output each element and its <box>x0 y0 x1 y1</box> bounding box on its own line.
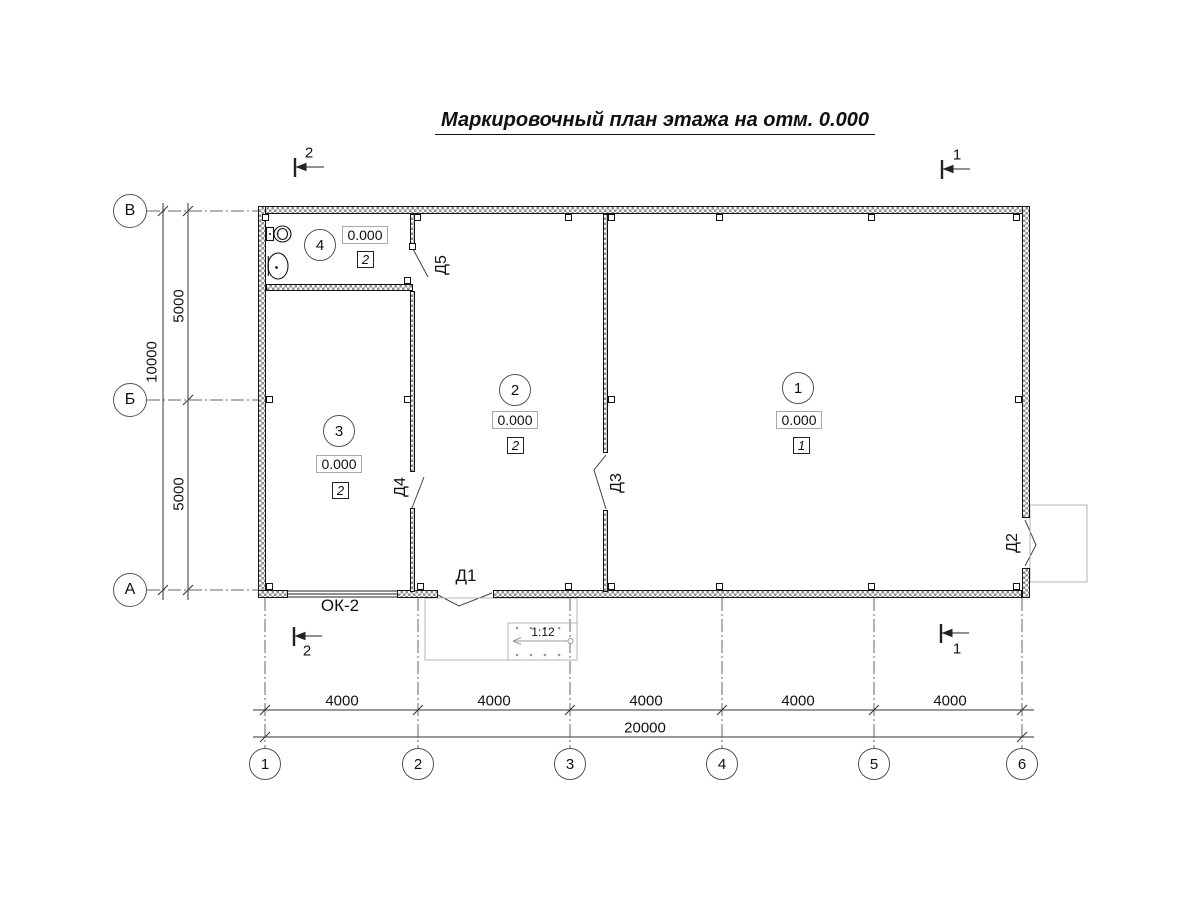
room-3-elevation-value: 0.000 <box>321 456 356 472</box>
column-tick <box>1013 583 1020 590</box>
column-tick <box>1013 214 1020 221</box>
axis-6-label: 6 <box>1018 756 1026 773</box>
room-4-elevation-value: 0.000 <box>347 227 382 243</box>
axis-bubble-a: А <box>113 573 147 607</box>
room-2-elevation: 0.000 <box>492 411 538 429</box>
axis-b-label: Б <box>125 391 136 409</box>
axis-bubble-5: 5 <box>858 748 890 780</box>
section-2-top-label: 2 <box>305 145 313 162</box>
column-tick <box>414 214 421 221</box>
room-4-finish-mark: 2 <box>357 251 374 268</box>
partition-room2-room1-upper <box>603 214 608 453</box>
column-tick <box>404 396 411 403</box>
wall-east-lower <box>1022 568 1030 598</box>
axis-3-label: 3 <box>566 756 574 773</box>
axis-bubble-2: 2 <box>402 748 434 780</box>
column-tick <box>565 583 572 590</box>
axis-bubble-1: 1 <box>249 748 281 780</box>
wall-bottom-pier-left <box>258 590 288 598</box>
room-1-bubble: 1 <box>782 372 814 404</box>
dim-4000-2: 4000 <box>477 693 510 710</box>
section-1-top-label: 1 <box>953 147 961 164</box>
door-label-d5: Д5 <box>433 255 451 275</box>
column-tick <box>1015 396 1022 403</box>
room-2-number: 2 <box>511 382 519 399</box>
window-label-ok2: ОК-2 <box>321 596 359 616</box>
partition-room4-bottom <box>266 284 413 291</box>
dim-4000-5: 4000 <box>933 693 966 710</box>
column-tick <box>266 583 273 590</box>
column-tick <box>608 396 615 403</box>
column-tick <box>409 243 416 250</box>
section-2-bottom-label: 2 <box>303 643 311 660</box>
room-1-elevation-value: 0.000 <box>781 412 816 428</box>
toilet-icon <box>267 226 292 242</box>
dim-5000-bottom: 5000 <box>171 477 188 510</box>
column-tick <box>608 583 615 590</box>
dim-10000-total: 10000 <box>144 341 161 383</box>
room-1-elevation: 0.000 <box>776 411 822 429</box>
room-2-finish-mark: 2 <box>507 437 524 454</box>
axis-4-label: 4 <box>718 756 726 773</box>
dim-4000-4: 4000 <box>781 693 814 710</box>
axis-1-label: 1 <box>261 756 269 773</box>
partition-room3-upper <box>410 291 415 472</box>
column-tick <box>608 214 615 221</box>
column-tick <box>716 583 723 590</box>
room-3-finish-value: 2 <box>337 483 344 498</box>
dim-5000-top: 5000 <box>171 289 188 322</box>
axis-bubble-3: 3 <box>554 748 586 780</box>
door-label-d2: Д2 <box>1004 533 1022 553</box>
column-tick <box>262 214 269 221</box>
room-1-number: 1 <box>794 380 802 397</box>
wall-top-exterior <box>258 206 1030 214</box>
axis-bubble-6: 6 <box>1006 748 1038 780</box>
room-4-bubble: 4 <box>304 229 336 261</box>
axis-grid-lines <box>147 211 1022 748</box>
room-2-bubble: 2 <box>499 374 531 406</box>
column-tick <box>716 214 723 221</box>
wall-bottom-exterior <box>493 590 1022 598</box>
axis-2-label: 2 <box>414 756 422 773</box>
dim-4000-1: 4000 <box>325 693 358 710</box>
room-1-finish-mark: 1 <box>793 437 810 454</box>
axis-a-label: А <box>125 581 136 599</box>
room-4-elevation: 0.000 <box>342 226 388 244</box>
column-tick <box>868 583 875 590</box>
room-1-finish-value: 1 <box>798 438 805 453</box>
axis-bubble-4: 4 <box>706 748 738 780</box>
room-4-number: 4 <box>316 237 324 254</box>
wall-east-upper <box>1022 206 1030 518</box>
room-3-number: 3 <box>335 423 343 440</box>
column-tick <box>417 583 424 590</box>
partition-room2-room1-lower <box>603 510 608 592</box>
partition-room3-lower <box>410 508 415 592</box>
door-label-d4: Д4 <box>392 477 410 497</box>
wall-bottom-pier-mid <box>397 590 438 598</box>
column-tick <box>404 277 411 284</box>
section-1-bottom-label: 1 <box>953 641 961 658</box>
door-label-d3: Д3 <box>608 473 626 493</box>
floor-plan-sheet: Маркировочный план этажа на отм. 0.000 1… <box>0 0 1200 900</box>
ramp-slope-label: 1:12 <box>531 625 554 639</box>
drawing-title: Маркировочный план этажа на отм. 0.000 <box>435 109 875 135</box>
room-2-finish-value: 2 <box>512 438 519 453</box>
axis-bubble-v: В <box>113 194 147 228</box>
column-tick <box>266 396 273 403</box>
axis-bubble-b: Б <box>113 383 147 417</box>
room-3-bubble: 3 <box>323 415 355 447</box>
dim-4000-3: 4000 <box>629 693 662 710</box>
entrance-platform <box>425 505 1087 660</box>
column-tick <box>565 214 572 221</box>
sink-icon <box>268 253 288 279</box>
dim-20000-total: 20000 <box>624 720 666 737</box>
wall-west-exterior <box>258 206 266 598</box>
column-tick <box>868 214 875 221</box>
section-marks <box>294 158 970 646</box>
door-label-d1: Д1 <box>456 566 477 586</box>
room-2-elevation-value: 0.000 <box>497 412 532 428</box>
axis-5-label: 5 <box>870 756 878 773</box>
room-3-elevation: 0.000 <box>316 455 362 473</box>
room-4-finish-value: 2 <box>362 252 369 267</box>
axis-v-label: В <box>125 202 136 220</box>
room-3-finish-mark: 2 <box>332 482 349 499</box>
